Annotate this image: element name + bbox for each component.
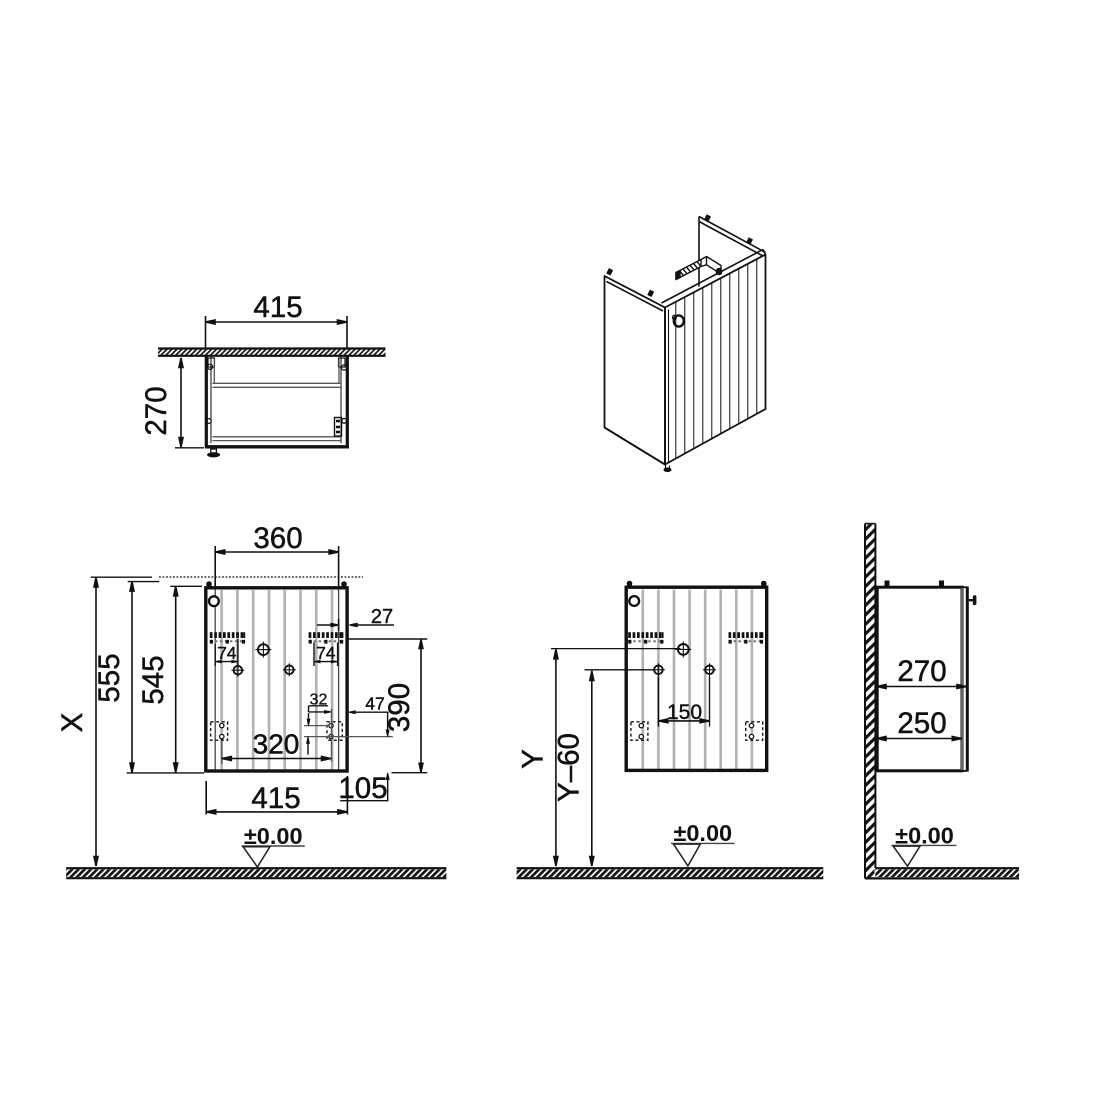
svg-text:74: 74 bbox=[217, 643, 237, 663]
svg-text:X: X bbox=[56, 712, 89, 732]
svg-text:415: 415 bbox=[251, 782, 300, 815]
svg-text:±0.00: ±0.00 bbox=[673, 820, 732, 846]
svg-text:150: 150 bbox=[667, 701, 702, 724]
svg-text:±0.00: ±0.00 bbox=[244, 823, 303, 849]
svg-text:Y–60: Y–60 bbox=[553, 733, 586, 802]
svg-text:27: 27 bbox=[371, 606, 393, 628]
svg-text:545: 545 bbox=[137, 655, 170, 704]
svg-text:270: 270 bbox=[140, 386, 173, 435]
svg-text:47: 47 bbox=[365, 694, 384, 714]
svg-text:Y: Y bbox=[517, 749, 550, 769]
svg-text:360: 360 bbox=[253, 522, 302, 555]
svg-text:105: 105 bbox=[338, 772, 387, 805]
svg-text:74: 74 bbox=[316, 643, 336, 663]
svg-text:±0.00: ±0.00 bbox=[895, 822, 954, 848]
svg-text:555: 555 bbox=[93, 653, 126, 702]
svg-text:415: 415 bbox=[253, 291, 302, 324]
svg-text:320: 320 bbox=[253, 729, 300, 760]
svg-text:270: 270 bbox=[897, 655, 946, 688]
svg-text:250: 250 bbox=[897, 707, 946, 740]
svg-text:32: 32 bbox=[310, 692, 328, 709]
